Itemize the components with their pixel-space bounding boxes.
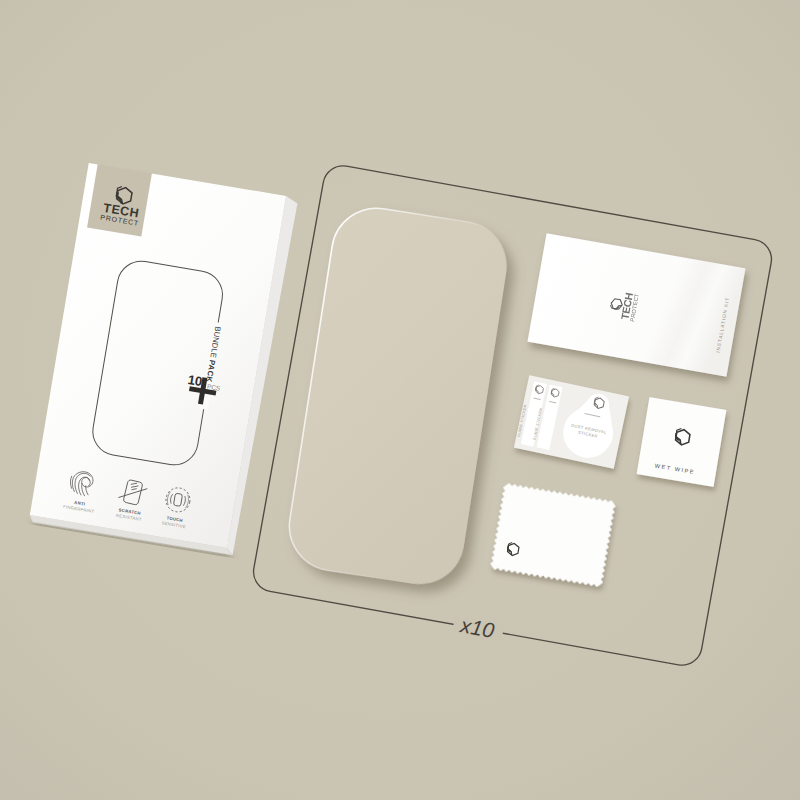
svg-text:10: 10: [187, 372, 204, 389]
